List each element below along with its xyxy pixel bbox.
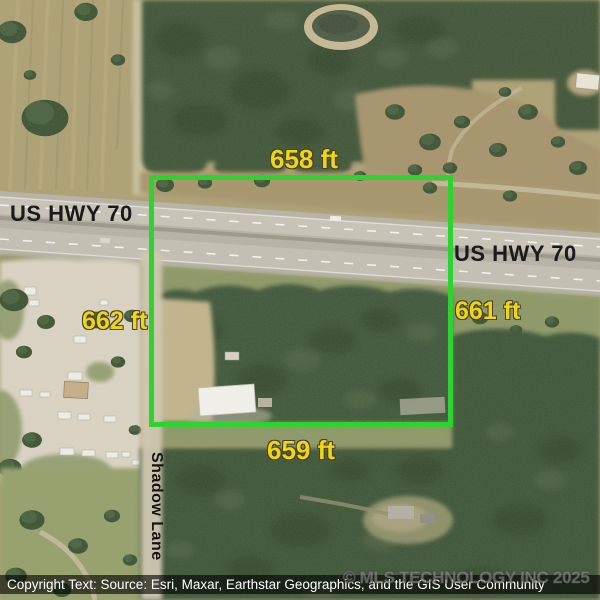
watermark: © MLS TECHNOLOGY INC 2025 bbox=[343, 569, 590, 586]
dimension-label-bottom: 659 ft bbox=[267, 437, 335, 463]
dimension-label-right: 661 ft bbox=[455, 299, 520, 324]
dimension-label-top: 658 ft bbox=[270, 146, 338, 172]
map-container: 658 ft 661 ft 659 ft 662 ft US HWY 70 US… bbox=[0, 0, 600, 600]
highway-label-east: US HWY 70 bbox=[454, 243, 577, 265]
highway-label-west: US HWY 70 bbox=[10, 203, 133, 225]
street-label-shadow-lane: Shadow Lane bbox=[148, 452, 164, 561]
dimension-label-left: 662 ft bbox=[82, 309, 147, 334]
